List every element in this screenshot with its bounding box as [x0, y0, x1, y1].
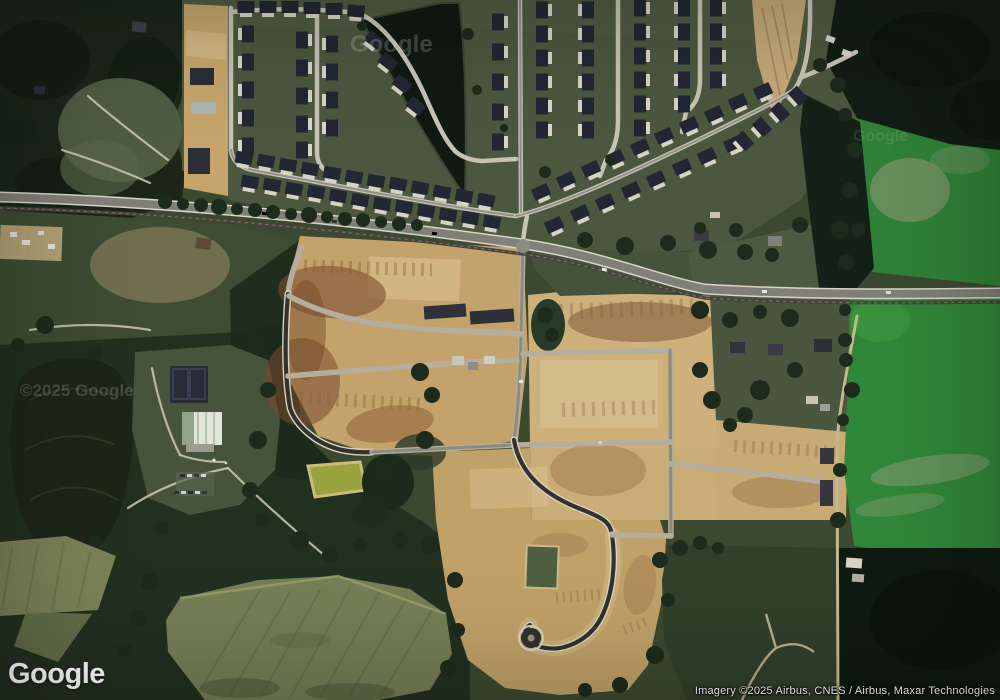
- forest-southeast: [838, 548, 1000, 700]
- retention-pond: [308, 462, 366, 497]
- map-canvas[interactable]: Google ©2025 Google Google Google Imager…: [0, 0, 1000, 700]
- farm-field-lower-east: [844, 294, 1000, 556]
- main-intersection: [516, 239, 530, 253]
- imagery-attribution: Imagery ©2025 Airbus, CNES / Airbus, Max…: [695, 685, 995, 697]
- farm-building: [846, 557, 863, 568]
- forest-northwest: [0, 0, 185, 222]
- cleared-lot-strip: [184, 4, 228, 196]
- tennis-courts: [170, 366, 208, 403]
- google-logo[interactable]: Google: [8, 658, 105, 691]
- field-south-center: [662, 545, 838, 700]
- satellite-imagery: [0, 0, 1000, 700]
